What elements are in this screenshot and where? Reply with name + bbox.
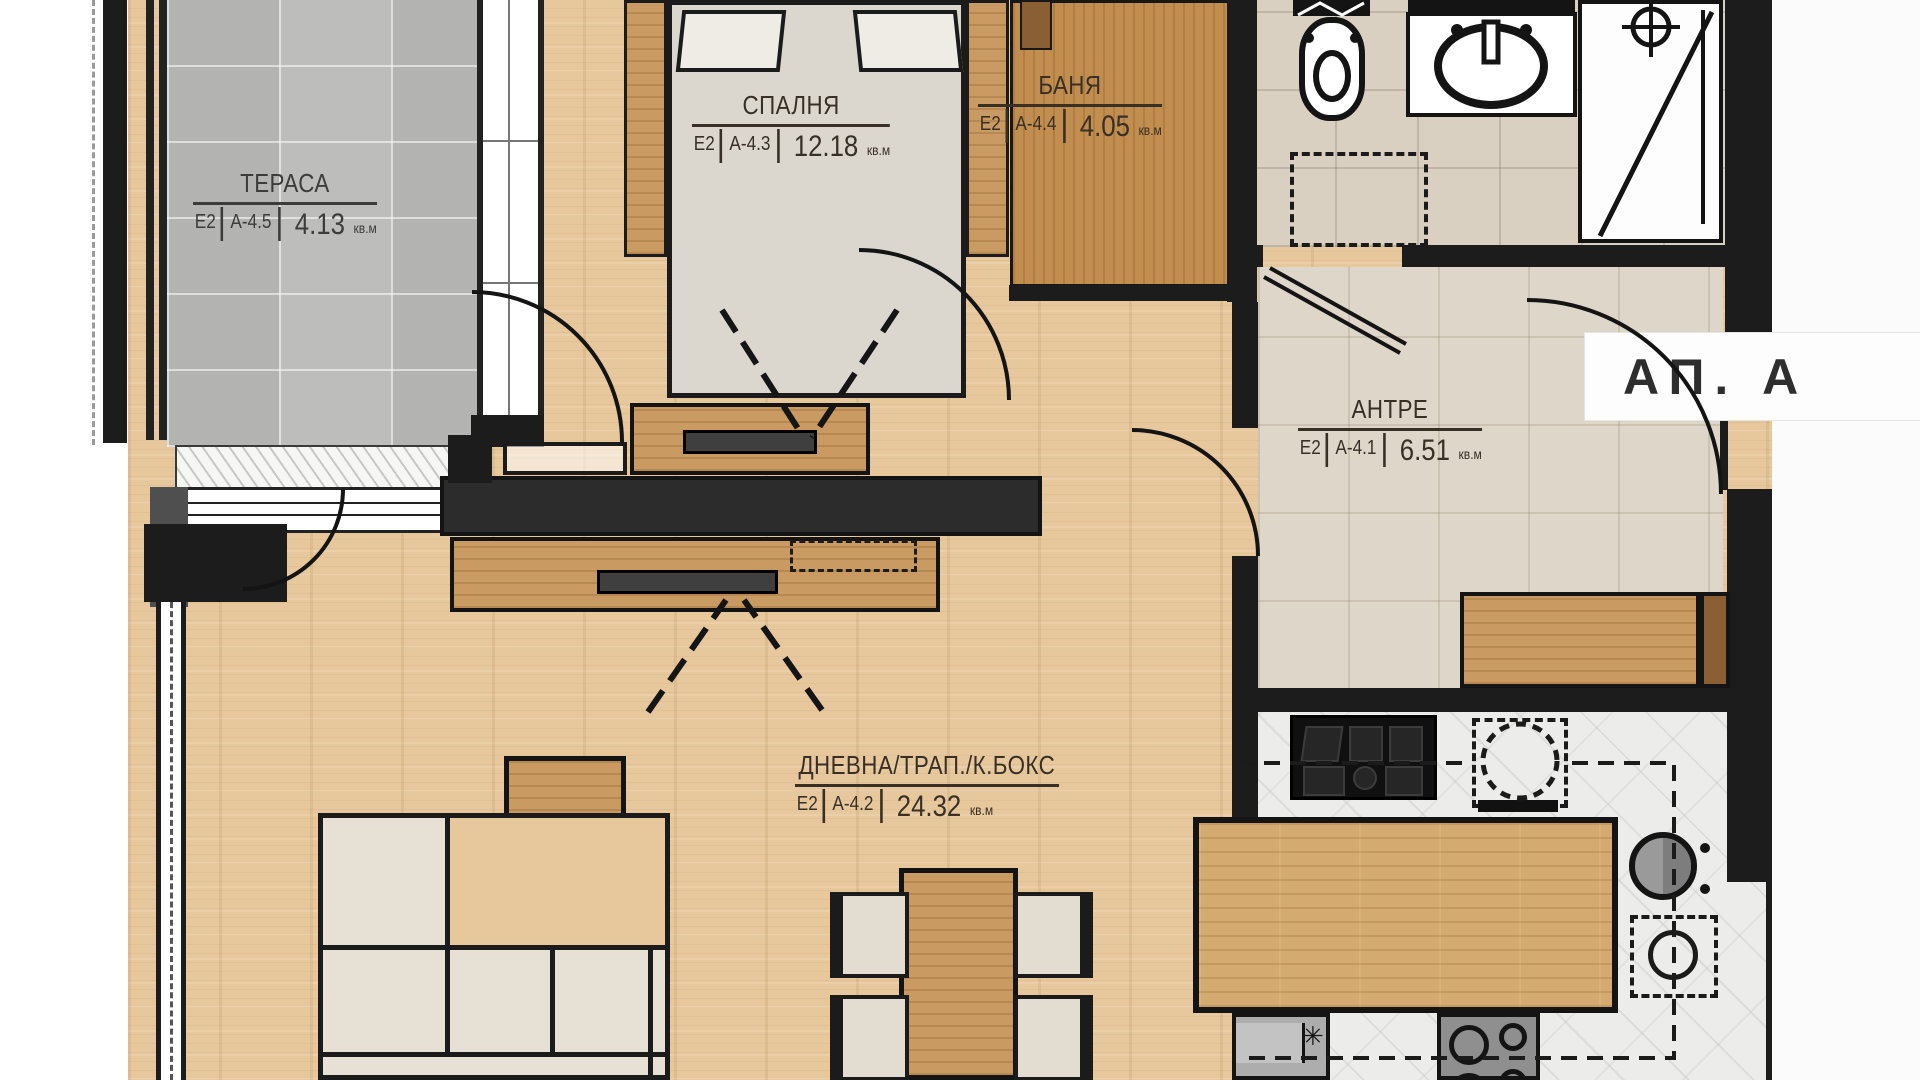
dining-chair [1014, 995, 1093, 1080]
zone-code: Е2 [978, 109, 1006, 143]
kitchen-sink-strip [1478, 800, 1558, 812]
cooktop-unit [1290, 715, 1437, 800]
room-area: 6.51 [1386, 433, 1459, 467]
unit-badge: АП. А [1585, 333, 1920, 420]
label-terrace: ТЕРАСА Е2 А-4.5 4.13 кв.м [193, 168, 377, 241]
wall-right-thin [1720, 420, 1728, 490]
hall-cabinet-dark [1700, 592, 1730, 688]
wardrobe-inner-box [1020, 0, 1052, 50]
balcony-door-window [477, 0, 544, 430]
fridge-unit: ✳ [1232, 1013, 1330, 1080]
dining-chair [1014, 892, 1093, 978]
wall-bath-bottom-b [1402, 245, 1772, 267]
label-bathroom: БАНЯ Е2 А-4.4 4.05 кв.м [978, 70, 1162, 143]
room-code: А-4.2 [823, 789, 883, 823]
label-bedroom: СПАЛНЯ Е2 А-4.3 12.18 кв.м [692, 90, 890, 163]
wall-left-chunk [144, 524, 287, 602]
installation-shaft [1578, 0, 1723, 243]
room-area: 12.18 [780, 129, 867, 163]
area-unit: кв.м [970, 789, 993, 823]
room-code: А-4.5 [221, 207, 281, 241]
margin-right [1772, 0, 1920, 1080]
kitchen-island [1193, 817, 1618, 1013]
kitchen-sink [1472, 718, 1568, 808]
room-name: БАНЯ [978, 70, 1162, 107]
room-area: 4.13 [281, 207, 354, 241]
plot-boundary-dashed [92, 0, 95, 445]
terrace-glazing-line [146, 0, 154, 440]
pillow [853, 10, 964, 72]
media-wall-chunk [448, 435, 492, 483]
area-unit: кв.м [867, 129, 890, 163]
window-strip-left [156, 602, 186, 1080]
margin-left [0, 0, 90, 1080]
area-unit: кв.м [1139, 109, 1162, 143]
room-name: ДНЕВНА/ТРАП./К.БОКС [795, 750, 1059, 787]
wall-hall-upper [1232, 302, 1258, 428]
terrace-glazing-line [159, 0, 167, 440]
unit-badge-text: АП. А [1623, 348, 1808, 406]
fan-knob [1700, 843, 1710, 853]
counter-appliance-box [1630, 915, 1718, 998]
room-area: 4.05 [1066, 109, 1139, 143]
zone-code: Е2 [795, 789, 823, 823]
room-area: 24.32 [883, 789, 970, 823]
asterisk-glyph: ✳ [1302, 1021, 1324, 1052]
pillow [676, 10, 787, 72]
living-cabinet-shelf [790, 540, 917, 572]
wall-right-thick [1727, 489, 1772, 882]
zone-code: Е2 [692, 129, 720, 163]
extractor-fan [1629, 832, 1697, 900]
hall-cabinet [1460, 592, 1700, 688]
wall-kitchen-stub [1232, 712, 1258, 818]
fan-knob [1700, 884, 1710, 894]
room-name: СПАЛНЯ [692, 90, 890, 127]
room-code: А-4.4 [1006, 109, 1066, 143]
washing-machine [1290, 152, 1428, 247]
label-hallway: АНТРЕ Е2 А-4.1 6.51 кв.м [1298, 394, 1482, 467]
floor-plan: ✳ ТЕРАСА Е2 А-4.5 4.13 кв.м СПАЛНЯ Е2 А-… [0, 0, 1920, 1080]
wall-bath-bottom-a [1227, 245, 1263, 267]
zone-code: Е2 [193, 207, 221, 241]
bed-side-rail [624, 0, 667, 257]
room-name: АНТРЕ [1298, 394, 1482, 431]
zone-code: Е2 [1298, 433, 1326, 467]
dining-table [899, 868, 1018, 1080]
wall-left-top [103, 0, 127, 443]
living-tv [597, 570, 778, 594]
area-unit: кв.м [354, 207, 377, 241]
bedroom-tv [683, 430, 817, 454]
area-unit: кв.м [1459, 433, 1482, 467]
bedroom-bench [503, 442, 627, 475]
wall-hall-lower [1232, 556, 1258, 690]
label-living: ДНЕВНА/ТРАП./К.БОКС Е2 А-4.2 24.32 кв.м [795, 750, 1059, 823]
wall-right-top [1725, 0, 1772, 333]
dining-chair [830, 995, 909, 1080]
media-wall [440, 476, 1042, 536]
hob-unit [1437, 1013, 1540, 1080]
room-code: А-4.1 [1326, 433, 1386, 467]
wall-hall-bottom [1232, 688, 1772, 712]
sofa [318, 813, 670, 1080]
dining-chair [830, 892, 909, 978]
terrace-sill-hatch [175, 445, 481, 491]
wall-wardrobe-bottom [1009, 285, 1233, 301]
room-code: А-4.3 [720, 129, 780, 163]
room-name: ТЕРАСА [193, 168, 377, 205]
